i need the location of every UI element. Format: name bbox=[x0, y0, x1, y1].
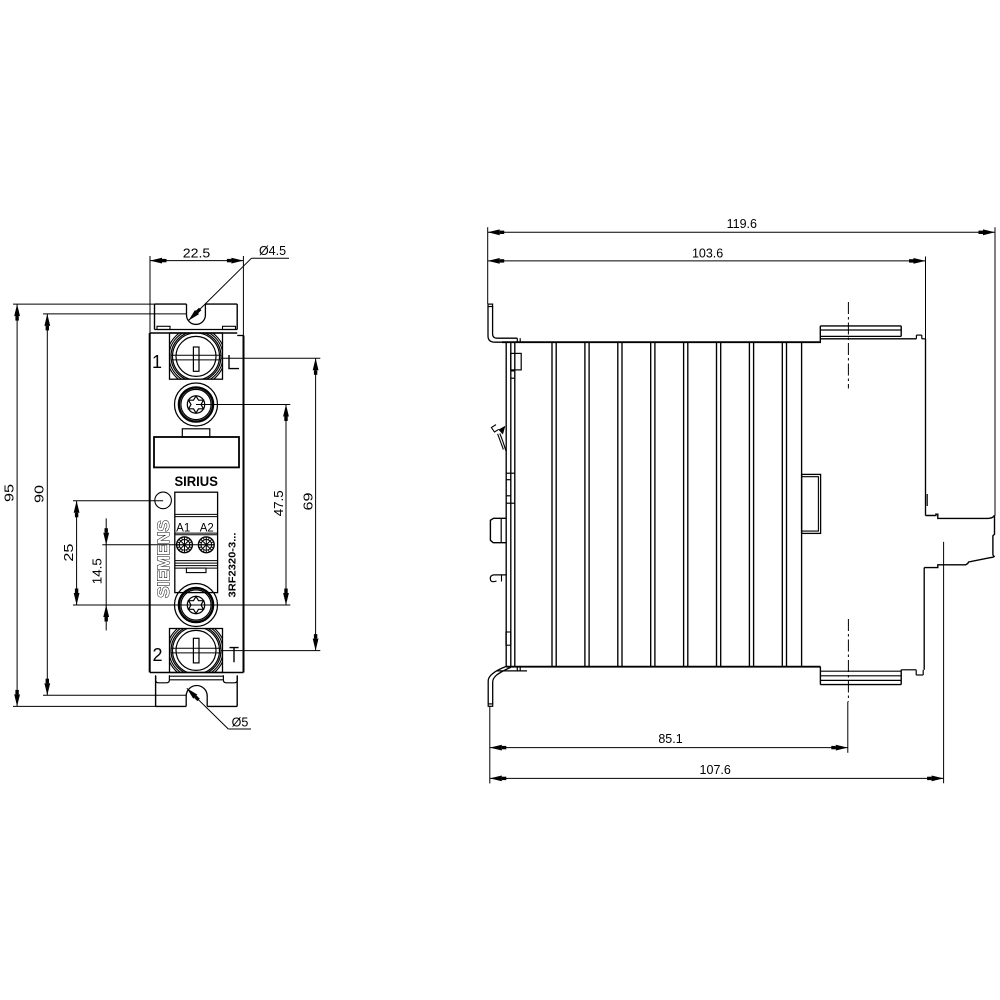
svg-text:2: 2 bbox=[152, 645, 162, 665]
svg-text:25: 25 bbox=[62, 544, 76, 562]
svg-text:1: 1 bbox=[152, 352, 162, 372]
svg-text:Ø5: Ø5 bbox=[232, 716, 249, 730]
svg-text:47.5: 47.5 bbox=[272, 490, 286, 516]
svg-text:95: 95 bbox=[2, 484, 16, 502]
svg-text:85.1: 85.1 bbox=[658, 732, 682, 746]
svg-text:69: 69 bbox=[301, 492, 315, 510]
svg-text:Ø4.5: Ø4.5 bbox=[259, 244, 286, 258]
svg-text:22.5: 22.5 bbox=[183, 246, 211, 260]
svg-text:90: 90 bbox=[33, 485, 47, 503]
svg-text:107.6: 107.6 bbox=[700, 763, 731, 777]
svg-text:119.6: 119.6 bbox=[727, 217, 757, 231]
svg-text:103.6: 103.6 bbox=[692, 247, 723, 261]
svg-text:14.5: 14.5 bbox=[90, 558, 104, 584]
svg-text:SIRIUS: SIRIUS bbox=[174, 473, 218, 489]
svg-text:3RF2320-3...: 3RF2320-3... bbox=[228, 532, 239, 597]
svg-text:SIEMENS: SIEMENS bbox=[154, 520, 173, 598]
